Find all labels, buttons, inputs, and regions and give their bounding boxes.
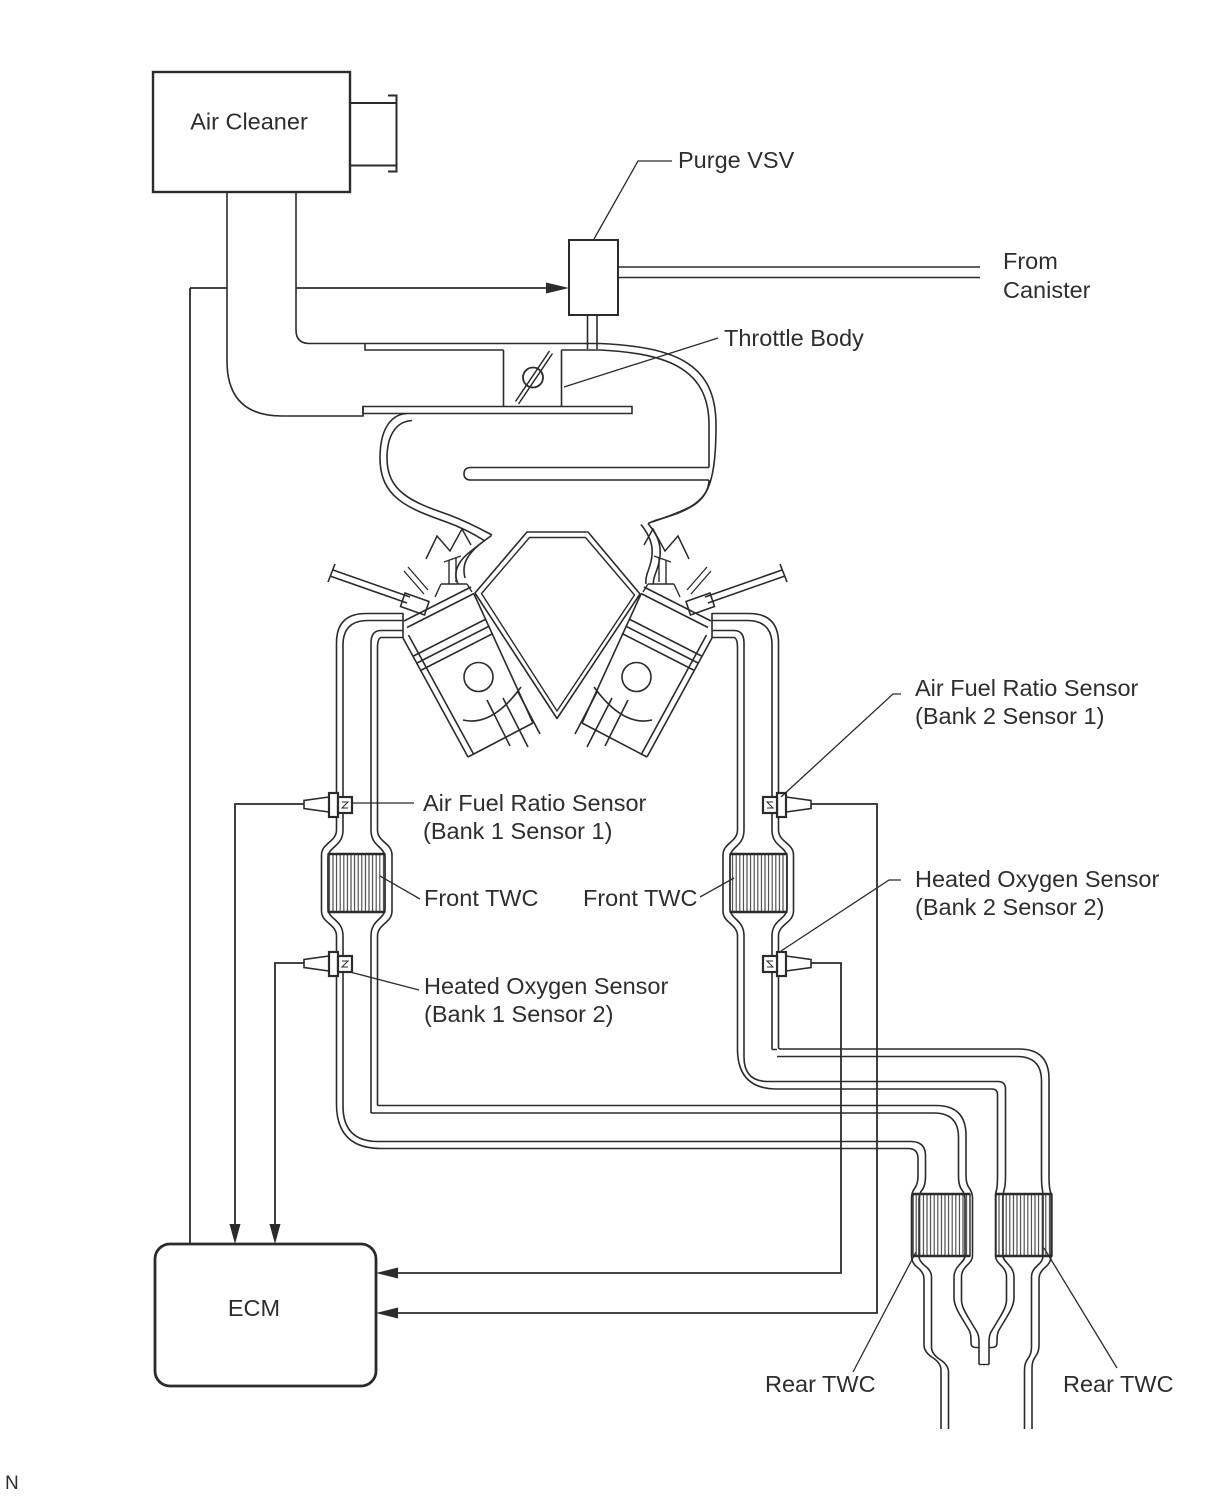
svg-text:(Bank 1 Sensor 1): (Bank 1 Sensor 1) [423, 818, 612, 844]
svg-text:(Bank 2 Sensor 1): (Bank 2 Sensor 1) [915, 703, 1104, 729]
svg-text:Rear TWC: Rear TWC [1063, 1371, 1174, 1397]
svg-text:(Bank 1 Sensor 2): (Bank 1 Sensor 2) [424, 1001, 613, 1027]
svg-text:Front TWC: Front TWC [583, 885, 697, 911]
svg-text:Front TWC: Front TWC [424, 885, 538, 911]
svg-text:ECM: ECM [228, 1295, 280, 1321]
svg-text:Heated Oxygen Sensor: Heated Oxygen Sensor [424, 973, 668, 999]
svg-text:Throttle Body: Throttle Body [724, 325, 864, 351]
svg-text:Canister: Canister [1003, 277, 1091, 303]
svg-text:Heated Oxygen Sensor: Heated Oxygen Sensor [915, 866, 1159, 892]
svg-text:Rear TWC: Rear TWC [765, 1371, 876, 1397]
svg-text:N: N [5, 1473, 19, 1494]
svg-text:Air Fuel Ratio Sensor: Air Fuel Ratio Sensor [423, 790, 647, 816]
svg-text:Purge VSV: Purge VSV [678, 147, 795, 173]
svg-text:Air Fuel Ratio Sensor: Air Fuel Ratio Sensor [915, 675, 1139, 701]
svg-text:From: From [1003, 248, 1058, 274]
svg-text:(Bank 2 Sensor 2): (Bank 2 Sensor 2) [915, 894, 1104, 920]
svg-text:Air Cleaner: Air Cleaner [190, 109, 308, 135]
